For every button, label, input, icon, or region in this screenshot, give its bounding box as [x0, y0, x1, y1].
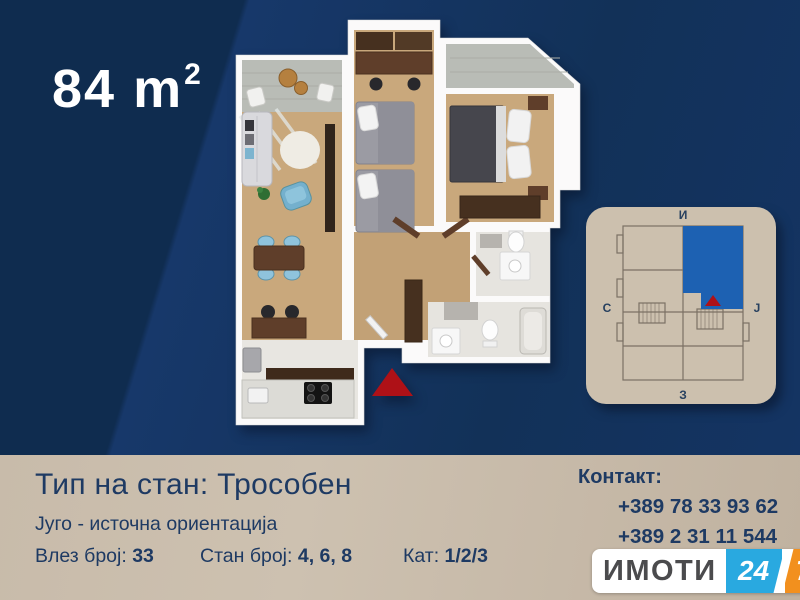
upper-counter: [266, 368, 354, 380]
contact-block: Контакт: +389 78 33 93 62 +389 2 31 11 5…: [578, 466, 778, 549]
phone-number-1: +389 78 33 93 62: [618, 495, 778, 519]
area-superscript: 2: [184, 58, 203, 91]
tv-unit: [325, 124, 335, 232]
round-rug: [280, 131, 320, 169]
toilet: [482, 320, 498, 340]
toilet: [508, 232, 524, 252]
details-row: Влез број: 33 Стан број: 4, 6, 8 Кат: 1/…: [35, 545, 488, 568]
building-map-svg: И С Ј З: [583, 203, 779, 409]
sink: [248, 388, 268, 403]
single-bed-1: [356, 102, 414, 164]
phone-number-2: +389 2 31 11 544: [618, 525, 778, 549]
fridge: [243, 348, 261, 372]
entrance-marker: [372, 368, 413, 396]
shower-mat: [480, 234, 502, 248]
cooktop: [304, 382, 332, 404]
desk: [356, 52, 432, 74]
nightstand: [528, 96, 548, 110]
type-label: Тип на стан:: [35, 468, 209, 501]
type-value: Трособен: [217, 468, 352, 501]
wardrobe: [395, 32, 432, 50]
compass-east: И: [679, 208, 688, 222]
area-label: 84 m2: [52, 58, 202, 120]
floorplan-svg: [228, 0, 584, 432]
sofa: [242, 112, 272, 186]
map-card: [586, 207, 776, 404]
contact-label: Контакт:: [578, 466, 778, 489]
logo-24-badge: 24: [726, 549, 782, 593]
single-bed-2: [356, 170, 414, 232]
wardrobe: [356, 32, 393, 50]
compass-west: З: [679, 388, 687, 402]
apartment-info: Тип на стан: Трособен Југо - источна ори…: [35, 468, 488, 568]
building-map: И С Ј З: [583, 203, 779, 414]
area-unit: m: [133, 59, 183, 119]
compass-north: С: [603, 301, 612, 315]
dresser: [460, 196, 540, 218]
logo-brand-text: ИМОТИ: [592, 549, 726, 593]
apartment-type-line: Тип на стан: Трособен: [35, 468, 488, 502]
entrance-field: Влез број: 33: [35, 545, 200, 568]
tile-mat: [444, 302, 478, 320]
apartment-number-field: Стан број: 4, 6, 8: [200, 545, 403, 568]
floorplan-image: [228, 0, 584, 437]
floor-field: Кат: 1/2/3: [403, 545, 488, 568]
compass-south: Ј: [754, 301, 761, 315]
brand-logo: ИМОТИ 24 7: [592, 549, 800, 593]
orientation-text: Југо - источна ориентација: [35, 513, 488, 536]
hall-cabinet: [405, 280, 422, 342]
area-value: 84: [52, 59, 116, 119]
